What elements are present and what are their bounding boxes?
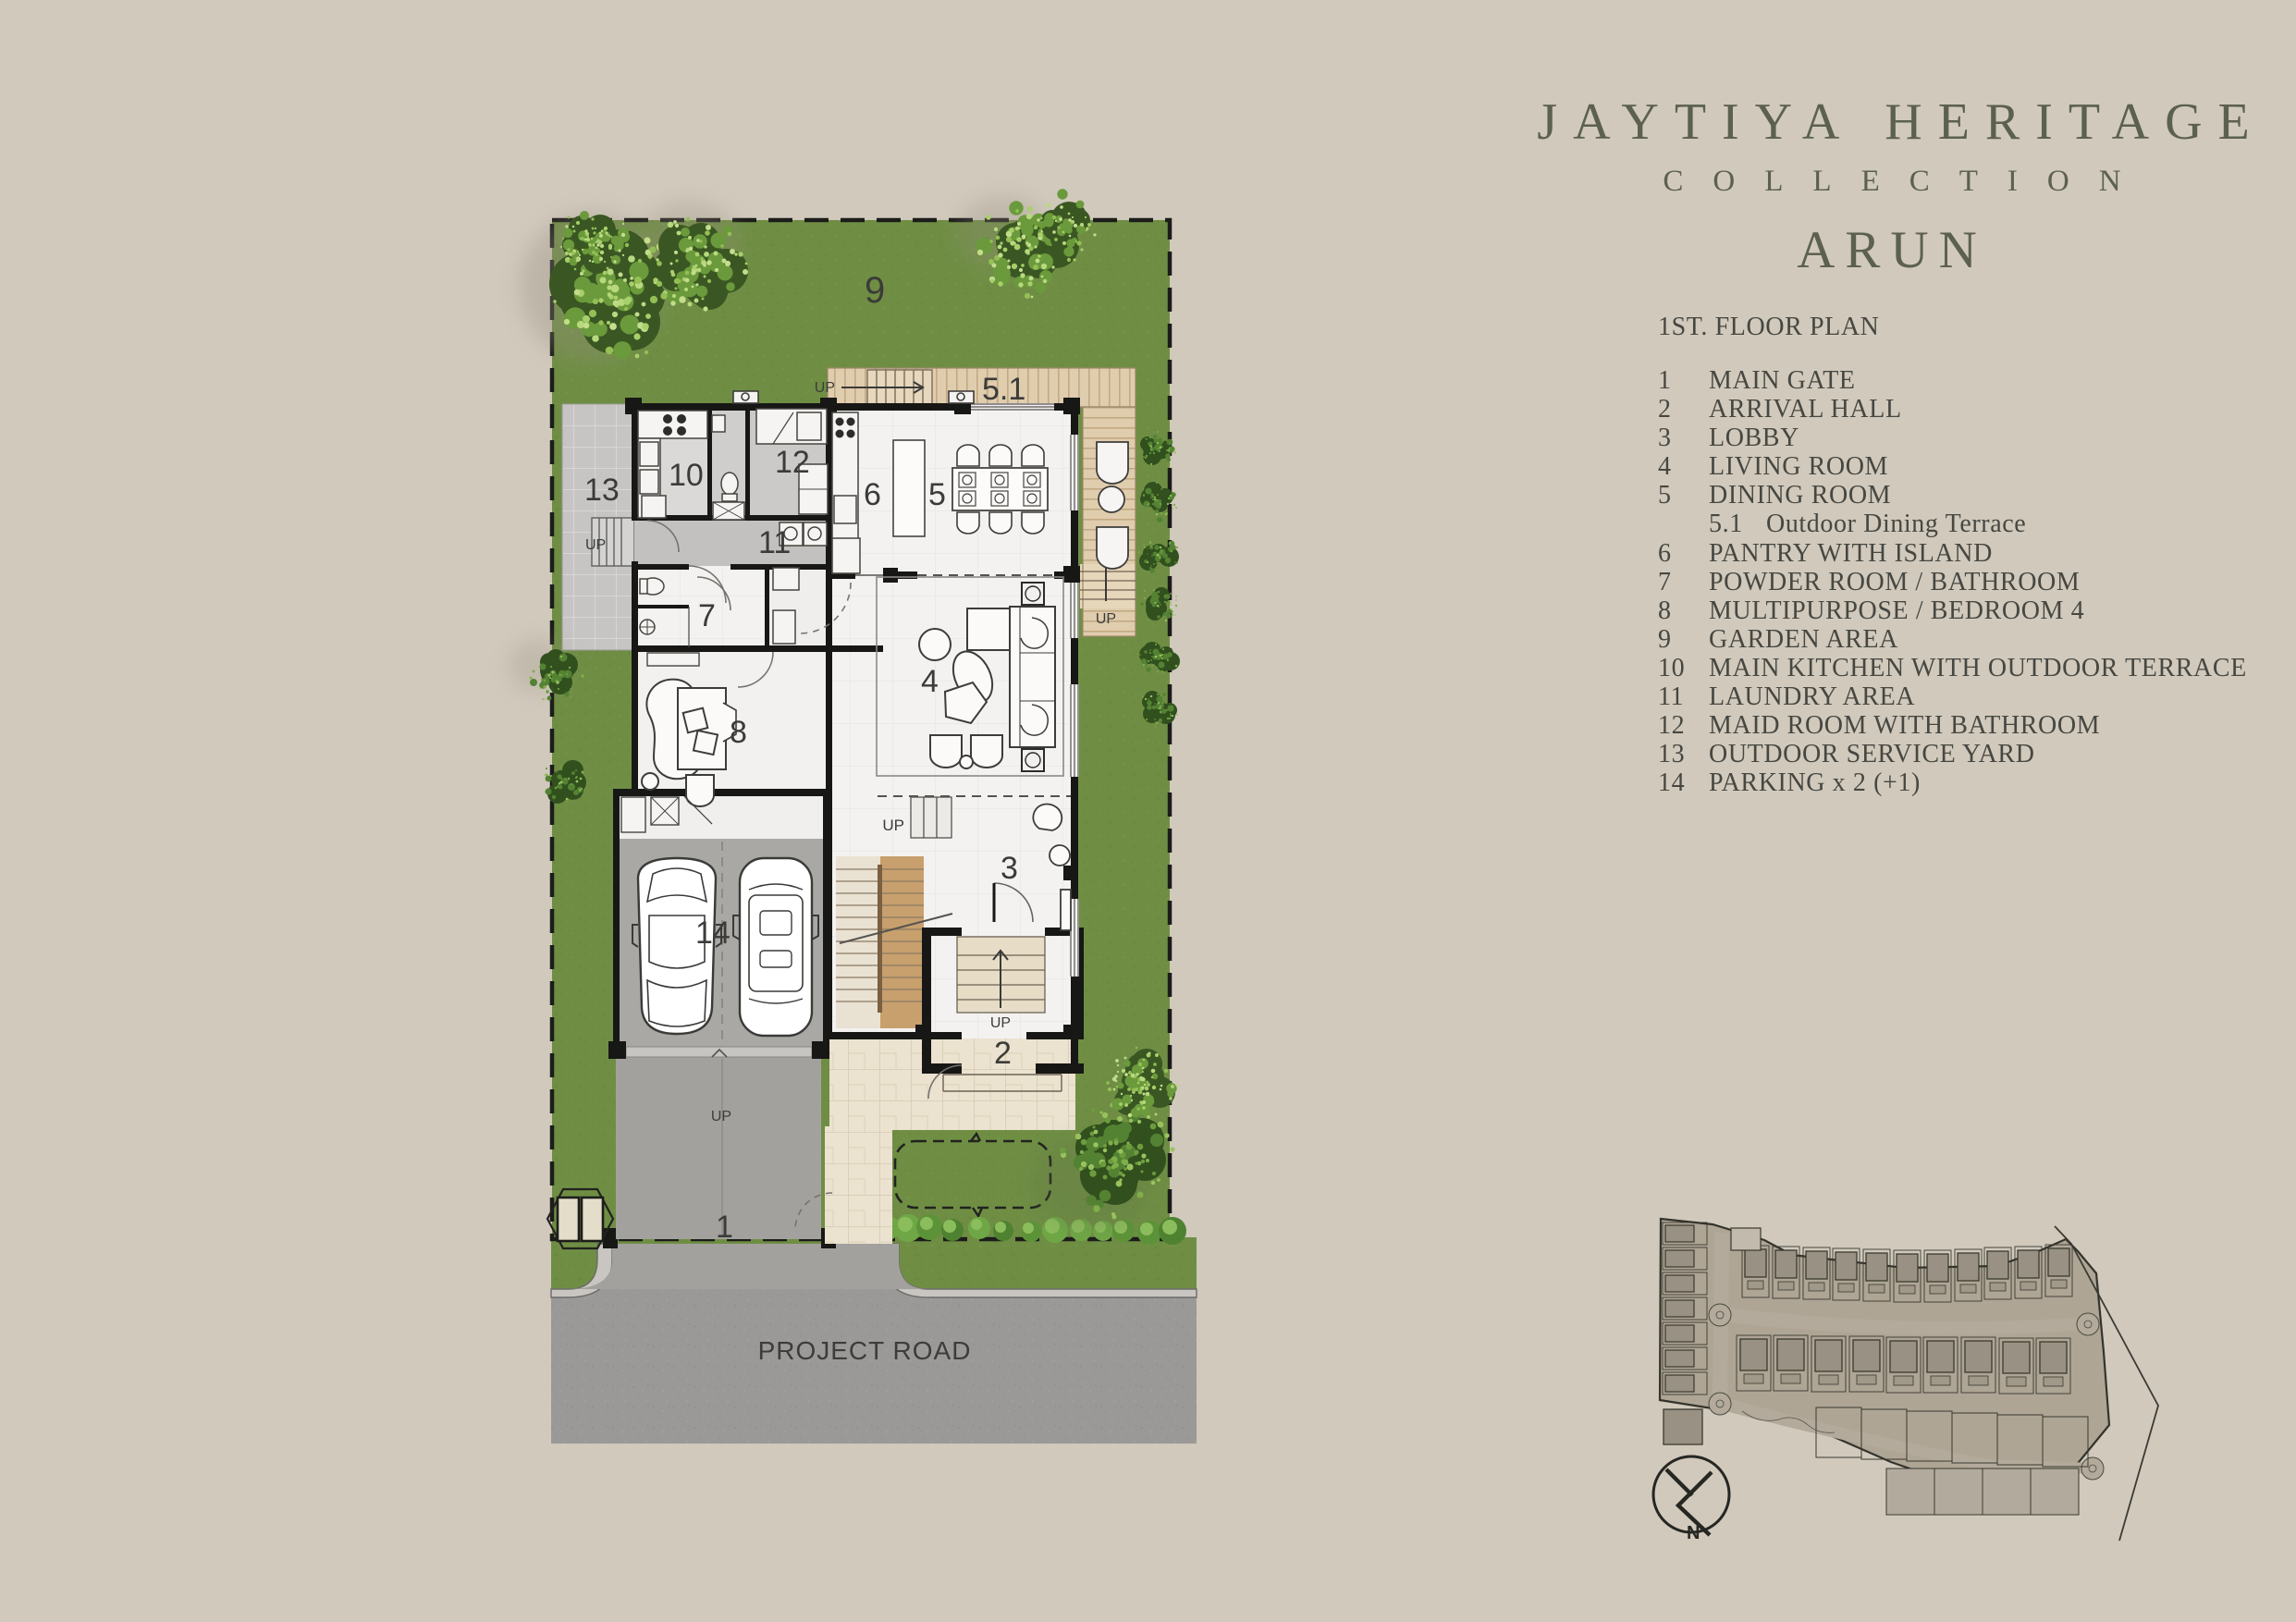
svg-text:9: 9 [865, 270, 885, 311]
svg-text:N: N [1687, 1523, 1700, 1543]
svg-text:Outdoor Dining Terrace: Outdoor Dining Terrace [1766, 510, 2026, 538]
svg-text:11: 11 [758, 525, 791, 560]
svg-text:3: 3 [1658, 424, 1672, 452]
svg-text:PANTRY WITH ISLAND: PANTRY WITH ISLAND [1709, 539, 1993, 568]
svg-text:LIVING ROOM: LIVING ROOM [1709, 452, 1888, 481]
svg-text:4: 4 [1658, 452, 1672, 481]
svg-text:4: 4 [921, 664, 939, 699]
svg-text:13: 13 [1658, 740, 1685, 768]
svg-text:UP: UP [585, 537, 606, 553]
svg-text:2: 2 [994, 1036, 1012, 1071]
svg-text:8: 8 [730, 715, 747, 750]
svg-text:DINING ROOM: DINING ROOM [1709, 481, 1891, 510]
svg-text:9: 9 [1658, 625, 1672, 654]
svg-text:3: 3 [1001, 851, 1018, 886]
svg-text:7: 7 [1658, 568, 1672, 596]
svg-text:5: 5 [1658, 481, 1672, 510]
svg-text:8: 8 [1658, 596, 1672, 625]
svg-text:6: 6 [1658, 539, 1672, 568]
svg-text:10: 10 [669, 458, 704, 493]
svg-text:1: 1 [716, 1210, 733, 1245]
svg-text:UP: UP [1096, 611, 1116, 627]
svg-text:2: 2 [1658, 395, 1672, 424]
svg-text:1ST. FLOOR PLAN: 1ST. FLOOR PLAN [1658, 313, 1880, 341]
svg-text:12: 12 [775, 445, 810, 480]
svg-text:5.1: 5.1 [1709, 510, 1743, 538]
svg-text:JAYTIYA HERITAGE: JAYTIYA HERITAGE [1537, 93, 2265, 151]
svg-text:PROJECT ROAD: PROJECT ROAD [758, 1336, 972, 1365]
svg-text:MAID ROOM WITH BATHROOM: MAID ROOM WITH BATHROOM [1709, 711, 2100, 740]
svg-text:MAIN GATE: MAIN GATE [1709, 366, 1856, 395]
svg-text:UP: UP [711, 1109, 731, 1124]
svg-text:ARUN: ARUN [1797, 221, 1987, 279]
svg-text:UP: UP [882, 817, 904, 834]
svg-text:POWDER ROOM / BATHROOM: POWDER ROOM / BATHROOM [1709, 568, 2080, 596]
svg-text:PARKING x 2 (+1): PARKING x 2 (+1) [1709, 768, 1921, 797]
svg-text:UP: UP [990, 1015, 1011, 1031]
svg-text:14: 14 [695, 915, 731, 951]
svg-text:11: 11 [1658, 682, 1684, 711]
svg-text:LAUNDRY AREA: LAUNDRY AREA [1709, 682, 1915, 711]
svg-text:OUTDOOR SERVICE YARD: OUTDOOR SERVICE YARD [1709, 740, 2035, 768]
svg-text:MULTIPURPOSE / BEDROOM 4: MULTIPURPOSE / BEDROOM 4 [1709, 596, 2084, 625]
svg-text:5.1: 5.1 [982, 372, 1025, 407]
svg-text:7: 7 [698, 598, 716, 633]
svg-text:MAIN KITCHEN WITH OUTDOOR TERR: MAIN KITCHEN WITH OUTDOOR TERRACE [1709, 654, 2247, 682]
svg-text:UP: UP [815, 380, 835, 396]
svg-text:10: 10 [1658, 654, 1685, 682]
svg-text:COLLECTION: COLLECTION [1663, 165, 2150, 198]
svg-text:6: 6 [864, 477, 881, 512]
svg-text:ARRIVAL HALL: ARRIVAL HALL [1709, 395, 1902, 424]
svg-text:GARDEN AREA: GARDEN AREA [1709, 625, 1898, 654]
svg-text:1: 1 [1658, 366, 1672, 395]
svg-text:LOBBY: LOBBY [1709, 424, 1799, 452]
svg-text:13: 13 [584, 473, 620, 508]
svg-text:12: 12 [1658, 711, 1685, 740]
svg-text:14: 14 [1658, 768, 1685, 797]
svg-text:5: 5 [928, 477, 946, 512]
